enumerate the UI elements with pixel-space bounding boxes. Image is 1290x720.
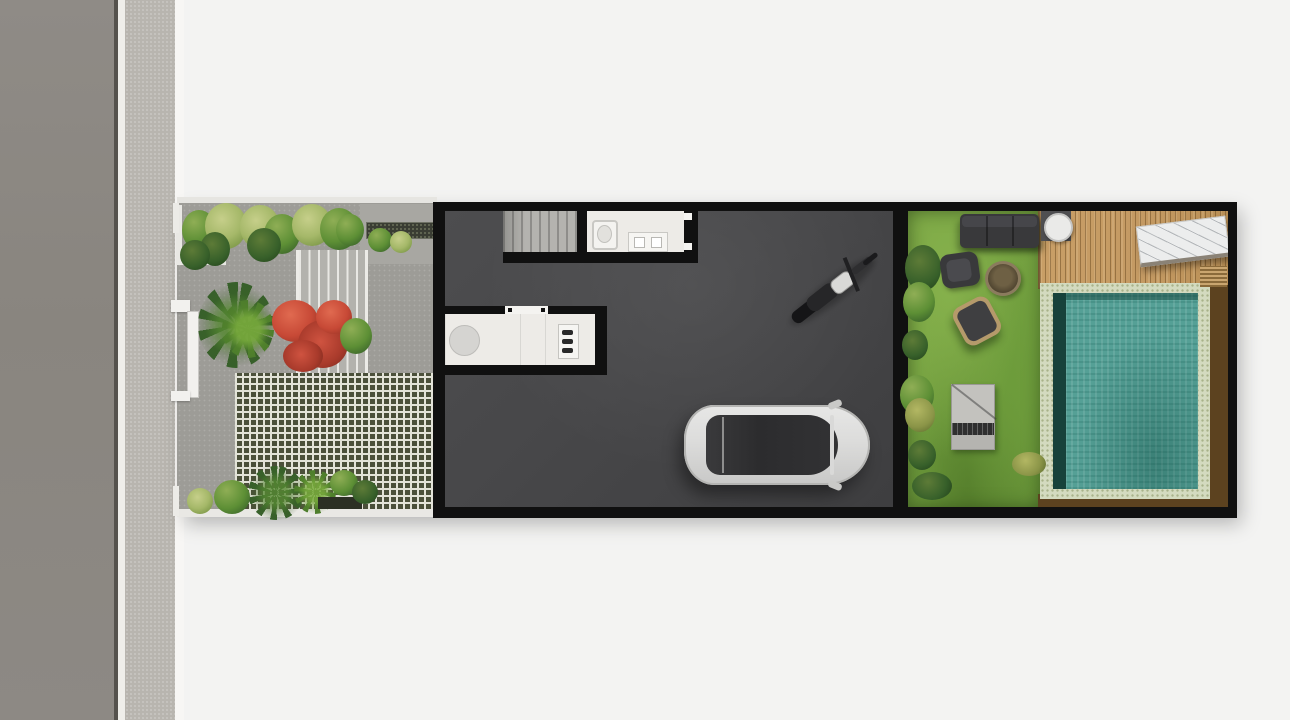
sink-basin [651, 237, 662, 248]
shrub [214, 480, 250, 514]
sidewalk [125, 0, 175, 720]
grass-tuft [1012, 452, 1046, 476]
cooktop [558, 324, 579, 359]
counter-seam [520, 314, 521, 365]
car-rear-window-line [722, 417, 724, 473]
perimeter-wall-bottom [517, 507, 1237, 518]
hedge-shrub [912, 472, 952, 500]
counter-seam [545, 314, 546, 365]
kitchen-window [505, 306, 548, 314]
outdoor-sofa [960, 214, 1039, 248]
bathroom-vanity [628, 232, 668, 252]
hedge-shrub [336, 214, 364, 246]
sofa-cushion-seam [986, 216, 988, 246]
hedge-shrub [247, 228, 281, 262]
sofa-cushion-seam [1012, 216, 1014, 246]
bench-seat [952, 435, 994, 449]
door-frame [684, 213, 692, 220]
swimming-pool [1053, 293, 1198, 489]
staircase [503, 211, 577, 253]
shrub [352, 480, 378, 504]
perimeter-wall-top [433, 202, 1237, 211]
kitchen-wall [437, 365, 607, 375]
perimeter-wall-right [1228, 202, 1237, 518]
shrub [902, 330, 928, 360]
hedge-shrub [180, 240, 210, 270]
car-windshield-edge [830, 415, 834, 475]
round-sink [449, 325, 480, 356]
site-plan-canvas [0, 0, 1290, 720]
fence-corner [173, 486, 179, 516]
bench-shadow-line [951, 384, 996, 420]
sofa-back-cushion [962, 216, 1037, 227]
shrub [908, 440, 936, 470]
shrub [187, 488, 213, 514]
shrub [340, 318, 372, 354]
outdoor-armchair [939, 251, 981, 290]
street-asphalt [0, 0, 116, 720]
curb [118, 0, 125, 720]
car [678, 401, 876, 489]
red-flower-bush [283, 340, 323, 372]
pool-edge-shadow [1066, 293, 1198, 300]
deck-stripe-mat [1200, 266, 1227, 287]
motorcycle [778, 246, 890, 330]
sink-basin [634, 237, 645, 248]
shrub [905, 398, 935, 432]
interior-wall [503, 252, 698, 263]
shrub [390, 231, 412, 253]
garden-tree [903, 282, 935, 322]
garden-bench-set [951, 384, 995, 450]
car-roof-glass [706, 415, 838, 475]
door-frame [684, 243, 692, 250]
fire-pit [985, 261, 1021, 296]
shrub [368, 228, 392, 252]
bench-slats [952, 423, 994, 435]
interior-wall [577, 211, 587, 263]
fence-corner [173, 203, 179, 233]
gate-post [171, 391, 190, 401]
interior-wall [684, 202, 698, 263]
palm-plant [222, 300, 274, 358]
deck-round-table [1044, 213, 1073, 242]
pool-overflow-edge [1053, 293, 1066, 489]
toilet-bowl [597, 225, 612, 243]
